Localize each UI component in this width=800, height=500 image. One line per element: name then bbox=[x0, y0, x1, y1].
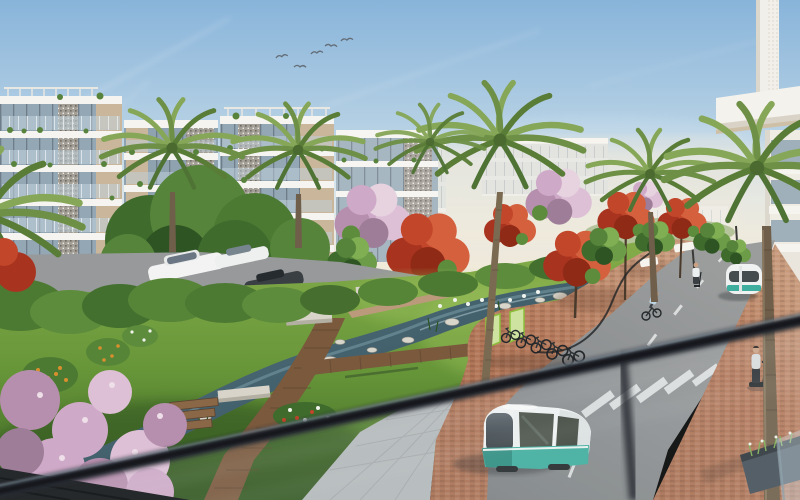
render-image bbox=[0, 0, 800, 500]
